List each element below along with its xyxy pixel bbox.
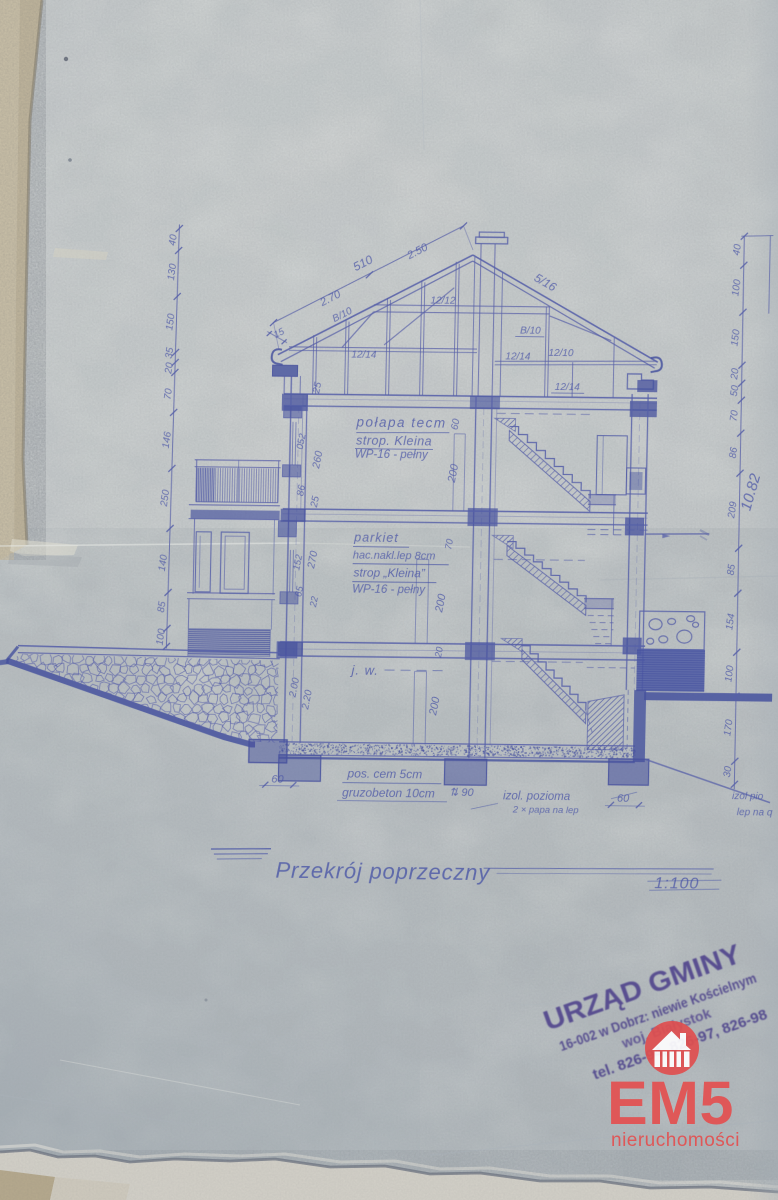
svg-text:hac.nakl.lep 8cm: hac.nakl.lep 8cm bbox=[353, 550, 436, 563]
svg-text:lep na q: lep na q bbox=[737, 807, 773, 818]
svg-text:12/10: 12/10 bbox=[548, 348, 574, 359]
svg-text:40: 40 bbox=[731, 243, 744, 256]
svg-text:12/12: 12/12 bbox=[430, 296, 456, 307]
svg-text:nieruchomości: nieruchomości bbox=[611, 1130, 740, 1151]
svg-text:j. w.: j. w. bbox=[349, 663, 379, 678]
svg-text:12/14: 12/14 bbox=[351, 350, 377, 361]
svg-text:pos. cem 5cm: pos. cem 5cm bbox=[346, 767, 422, 782]
svg-text:strop. Kleina: strop. Kleina bbox=[356, 434, 432, 449]
svg-text:12/14: 12/14 bbox=[505, 351, 531, 362]
svg-text:strop „Kleina”: strop „Kleina” bbox=[353, 566, 426, 581]
svg-text:parkiet: parkiet bbox=[353, 531, 399, 546]
svg-text:2 × papa na lep: 2 × papa na lep bbox=[512, 805, 579, 817]
svg-text:70: 70 bbox=[162, 387, 175, 400]
svg-text:60: 60 bbox=[271, 774, 284, 786]
svg-text:20: 20 bbox=[163, 361, 176, 375]
svg-text:50: 50 bbox=[729, 384, 742, 397]
svg-text:izol pio: izol pio bbox=[732, 791, 764, 802]
svg-text:WP-16 - pełny: WP-16 - pełny bbox=[355, 449, 429, 462]
svg-text:Przekrój poprzeczny: Przekrój poprzeczny bbox=[275, 858, 491, 886]
svg-text:izol. pozioma: izol. pozioma bbox=[503, 790, 570, 803]
svg-text:85: 85 bbox=[726, 563, 739, 576]
svg-text:86: 86 bbox=[728, 446, 741, 459]
svg-text:gruzobeton 10cm: gruzobeton 10cm bbox=[342, 786, 435, 801]
svg-text:30: 30 bbox=[722, 765, 735, 778]
svg-text:60: 60 bbox=[617, 793, 630, 805]
svg-text:40: 40 bbox=[167, 233, 180, 246]
svg-text:połapa tecm: połapa tecm bbox=[355, 415, 446, 431]
svg-text:20: 20 bbox=[729, 367, 742, 381]
svg-text:35: 35 bbox=[164, 346, 177, 359]
svg-text:70: 70 bbox=[728, 409, 741, 422]
svg-text:85: 85 bbox=[156, 600, 169, 613]
svg-text:EM5: EM5 bbox=[607, 1069, 734, 1137]
svg-text:B/10: B/10 bbox=[520, 326, 541, 337]
svg-text:⇅ 90: ⇅ 90 bbox=[449, 787, 475, 799]
svg-text:WP-16 - pełny: WP-16 - pełny bbox=[352, 584, 426, 597]
svg-text:12/14: 12/14 bbox=[555, 382, 581, 393]
